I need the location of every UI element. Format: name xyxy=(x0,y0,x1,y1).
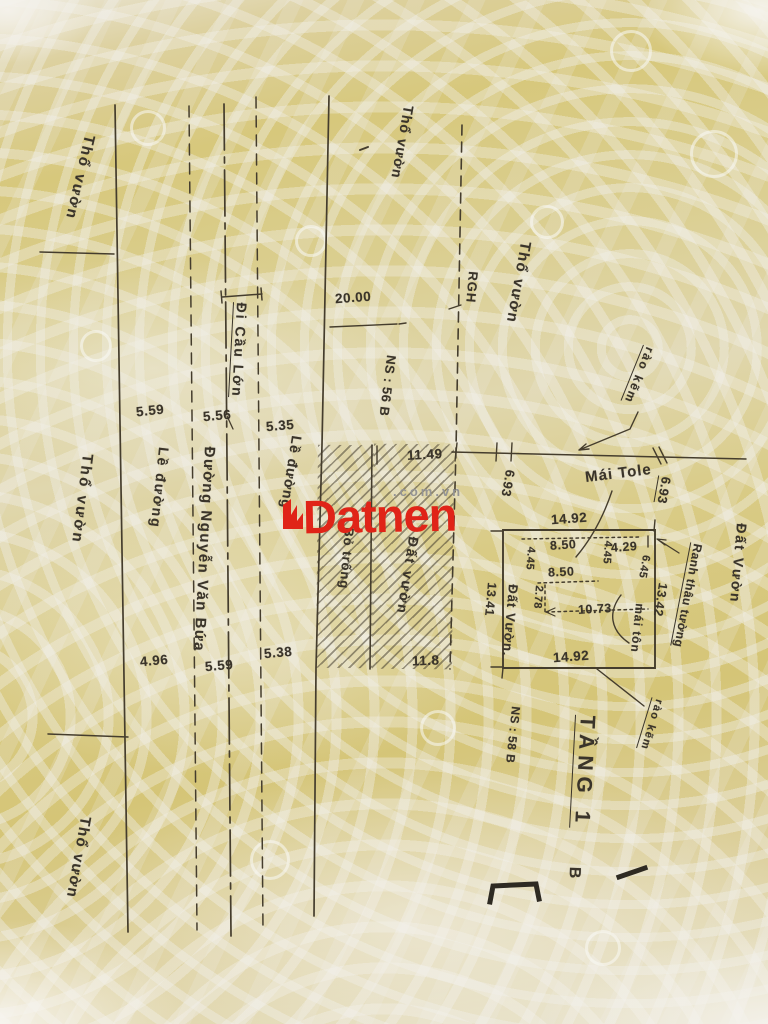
rao-kem-bottom-leader xyxy=(597,669,644,706)
dim-plot-top: 14.92 xyxy=(551,511,588,527)
label-tang-1: TẦNG 1 xyxy=(569,715,598,829)
dim-inner-850b: 8.50 xyxy=(548,565,575,579)
dim-plot-left: 13.41 xyxy=(483,582,498,617)
watermark: .com.vn Datnen xyxy=(281,483,491,543)
dim-inner-1073: 10.73 xyxy=(578,602,612,616)
dim-upper-2: 5.56 xyxy=(202,408,231,424)
dim-lower-3: 5.38 xyxy=(263,645,292,661)
road-edge-dashed-right xyxy=(256,97,263,930)
parcel-boundary-left-line xyxy=(115,105,128,932)
watermark-brand: Datnen xyxy=(303,491,457,541)
ranh-thau-tuong-leader xyxy=(657,539,679,553)
dim-inner-278: 2.78 xyxy=(531,585,544,609)
dim-plot-bottom: 14.92 xyxy=(553,649,590,665)
watermark-logo-icon xyxy=(281,495,305,531)
dim-hatch-top: 11.49 xyxy=(407,447,443,462)
dim-hatch-bottom: 11.8 xyxy=(412,654,440,668)
label-rgh: RGH xyxy=(464,271,480,304)
label-b-fragment: B xyxy=(566,866,582,879)
dim-upper-1: 5.59 xyxy=(135,403,165,419)
dim-inner-429: 4.29 xyxy=(611,540,638,554)
survey-drawing-page: Thổ vườn Thổ vườn Thổ vườn Thổ vườn Thổ … xyxy=(0,0,768,1024)
rao-kem-top-leader xyxy=(579,412,638,450)
mai-ton-leader xyxy=(613,595,629,643)
bottom-fragment-bracket xyxy=(490,884,539,902)
dim-lower-1: 4.96 xyxy=(139,653,168,669)
road-edge-dashed-left xyxy=(189,106,197,930)
bottom-fragment-dash xyxy=(619,868,645,877)
road-centerline xyxy=(224,104,231,936)
dim-upper-3: 5.35 xyxy=(265,418,294,434)
dim-road-width: 20.00 xyxy=(335,290,372,306)
strip-divider-line xyxy=(370,445,372,669)
rgh-dashed-line xyxy=(450,125,462,669)
dim-inner-445b: 4.45 xyxy=(600,540,613,564)
dim-inner-850a: 8.50 xyxy=(550,538,577,552)
dim-lower-2: 5.59 xyxy=(204,658,233,674)
dim-inner-445a: 4.45 xyxy=(523,546,536,570)
